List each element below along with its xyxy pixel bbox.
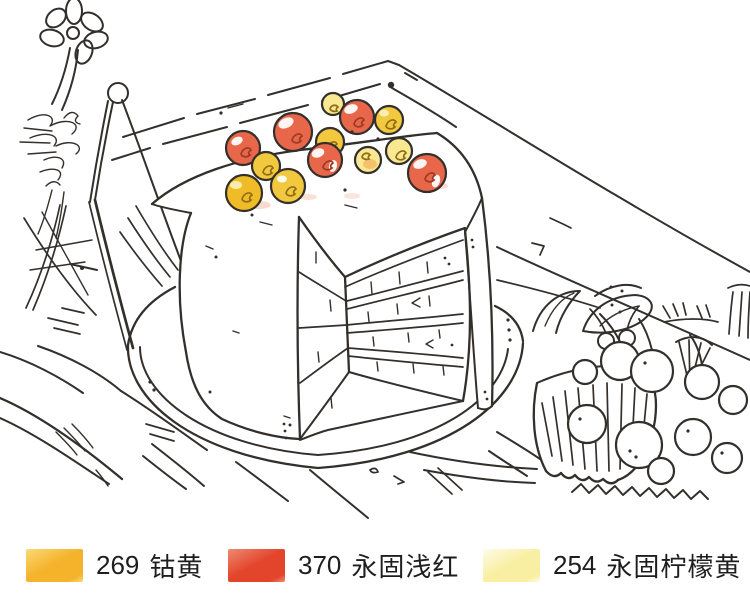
- paint-swatch-permanent-light-red: [228, 549, 285, 582]
- side-dish-sketch: [0, 346, 122, 486]
- cherry-pale: [386, 138, 412, 164]
- cherry-pale-orange: [355, 147, 381, 173]
- paint-name: 永固柠檬黄: [606, 547, 741, 584]
- paint-swatch-cobalt-yellow: [26, 549, 83, 582]
- cherry-yellow-deep: [226, 175, 262, 211]
- cherry-red: [308, 143, 342, 177]
- paint-swatch-permanent-lemon-yellow: [483, 549, 540, 582]
- legend-item-cobalt-yellow: 269 钴黄: [26, 545, 203, 585]
- legend-item-permanent-light-red: 370 永固浅红: [228, 545, 459, 585]
- cherry-yellow: [271, 169, 305, 203]
- cherry-red: [340, 100, 374, 134]
- paint-code: 269: [96, 550, 139, 581]
- paint-name: 永固浅红: [351, 547, 459, 584]
- cherry-cup: [534, 306, 747, 499]
- legend-item-permanent-lemon-yellow: 254 永固柠檬黄: [483, 545, 741, 585]
- cherry-yellow: [375, 106, 403, 134]
- paint-code: 254: [553, 550, 596, 581]
- cake-sketch-illustration: [0, 0, 750, 540]
- cherry-red: [408, 154, 446, 192]
- cherry-red: [274, 113, 312, 151]
- flower-bush-sketch: [20, 112, 80, 238]
- paint-code: 370: [298, 550, 341, 581]
- daisy-flower: [38, 0, 109, 110]
- tutorial-illustration-page: 269 钴黄 370 永固浅红 254 永固柠檬黄: [0, 0, 750, 599]
- color-legend: 269 钴黄 370 永固浅红 254 永固柠檬黄: [0, 540, 750, 599]
- paint-name: 钴黄: [149, 547, 203, 584]
